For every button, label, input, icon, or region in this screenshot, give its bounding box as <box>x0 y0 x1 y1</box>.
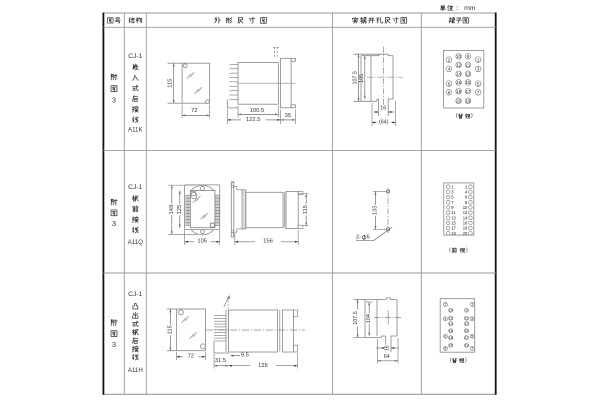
svg-text:(: ( <box>450 358 452 364</box>
svg-text:14: 14 <box>456 72 461 77</box>
svg-text:14: 14 <box>449 322 453 326</box>
svg-text:6: 6 <box>444 334 446 338</box>
svg-text:(: ( <box>456 113 458 119</box>
svg-text:1: 1 <box>471 303 473 307</box>
svg-text:3: 3 <box>112 219 116 228</box>
svg-text:3: 3 <box>112 340 116 349</box>
svg-text:3: 3 <box>112 96 116 105</box>
svg-text:): ) <box>465 358 467 364</box>
svg-text:20: 20 <box>456 99 461 104</box>
svg-text:A11Q: A11Q <box>128 239 144 246</box>
svg-text:19: 19 <box>466 99 471 104</box>
svg-text:20: 20 <box>449 343 453 347</box>
svg-text:11: 11 <box>465 316 469 320</box>
svg-text:115: 115 <box>303 205 309 214</box>
svg-text:16: 16 <box>456 80 461 85</box>
svg-text:122.5: 122.5 <box>246 117 261 123</box>
svg-text:18: 18 <box>456 89 461 94</box>
svg-text:13: 13 <box>466 72 471 77</box>
svg-text:): ) <box>466 247 468 253</box>
svg-text:CJ-1: CJ-1 <box>128 184 143 191</box>
svg-text:CJ-1: CJ-1 <box>128 53 143 60</box>
svg-text:5: 5 <box>471 334 473 338</box>
svg-text:20: 20 <box>463 231 468 236</box>
svg-text:125: 125 <box>177 205 183 215</box>
svg-text:7: 7 <box>471 347 473 351</box>
svg-text:156: 156 <box>263 239 273 245</box>
svg-text:9.5: 9.5 <box>241 353 249 359</box>
svg-text:15: 15 <box>466 80 471 85</box>
svg-text:149: 149 <box>169 205 175 215</box>
svg-text:64: 64 <box>384 354 390 360</box>
svg-text:(: ( <box>449 247 451 253</box>
svg-text:2-: 2- <box>356 234 361 240</box>
svg-text:126: 126 <box>258 363 268 369</box>
svg-text:18: 18 <box>449 336 453 340</box>
svg-text:19: 19 <box>464 343 468 347</box>
svg-text:12: 12 <box>456 63 461 68</box>
svg-text:5: 5 <box>367 234 370 240</box>
svg-text:2: 2 <box>444 303 446 307</box>
svg-text:9: 9 <box>465 308 467 312</box>
svg-text:19: 19 <box>451 231 456 236</box>
svg-text:10: 10 <box>456 54 461 59</box>
svg-text:8: 8 <box>444 347 446 351</box>
svg-text:4: 4 <box>444 317 446 321</box>
svg-text:16: 16 <box>380 105 386 111</box>
svg-text:11: 11 <box>466 63 471 68</box>
svg-text:16: 16 <box>449 329 453 333</box>
svg-text:): ) <box>471 113 473 119</box>
svg-text:31.5: 31.5 <box>215 358 226 364</box>
svg-text:115: 115 <box>168 79 174 88</box>
svg-text:107.5: 107.5 <box>353 311 359 325</box>
svg-text:(64): (64) <box>379 120 389 126</box>
svg-text:115: 115 <box>167 325 173 334</box>
svg-text:10: 10 <box>449 308 453 312</box>
svg-text:15: 15 <box>464 329 468 333</box>
svg-text:16: 16 <box>385 345 391 351</box>
svg-text:72: 72 <box>188 354 194 360</box>
svg-text:105: 105 <box>359 74 365 83</box>
svg-text:133: 133 <box>373 206 379 215</box>
svg-text:17: 17 <box>464 336 468 340</box>
svg-text:107.5: 107.5 <box>352 71 358 85</box>
svg-text:A11H: A11H <box>128 367 143 374</box>
svg-text:17: 17 <box>466 89 471 94</box>
svg-text:CJ-1: CJ-1 <box>128 291 143 298</box>
svg-text:104: 104 <box>366 314 372 323</box>
svg-text:12: 12 <box>449 316 453 320</box>
svg-text:13: 13 <box>464 322 468 326</box>
svg-text:3: 3 <box>471 317 473 321</box>
svg-text:100.5: 100.5 <box>250 108 265 114</box>
svg-text:105: 105 <box>197 239 207 245</box>
svg-text:A11K: A11K <box>128 127 144 134</box>
svg-text:35: 35 <box>285 113 291 119</box>
svg-text:72: 72 <box>191 108 197 114</box>
svg-text:mm: mm <box>464 5 476 12</box>
